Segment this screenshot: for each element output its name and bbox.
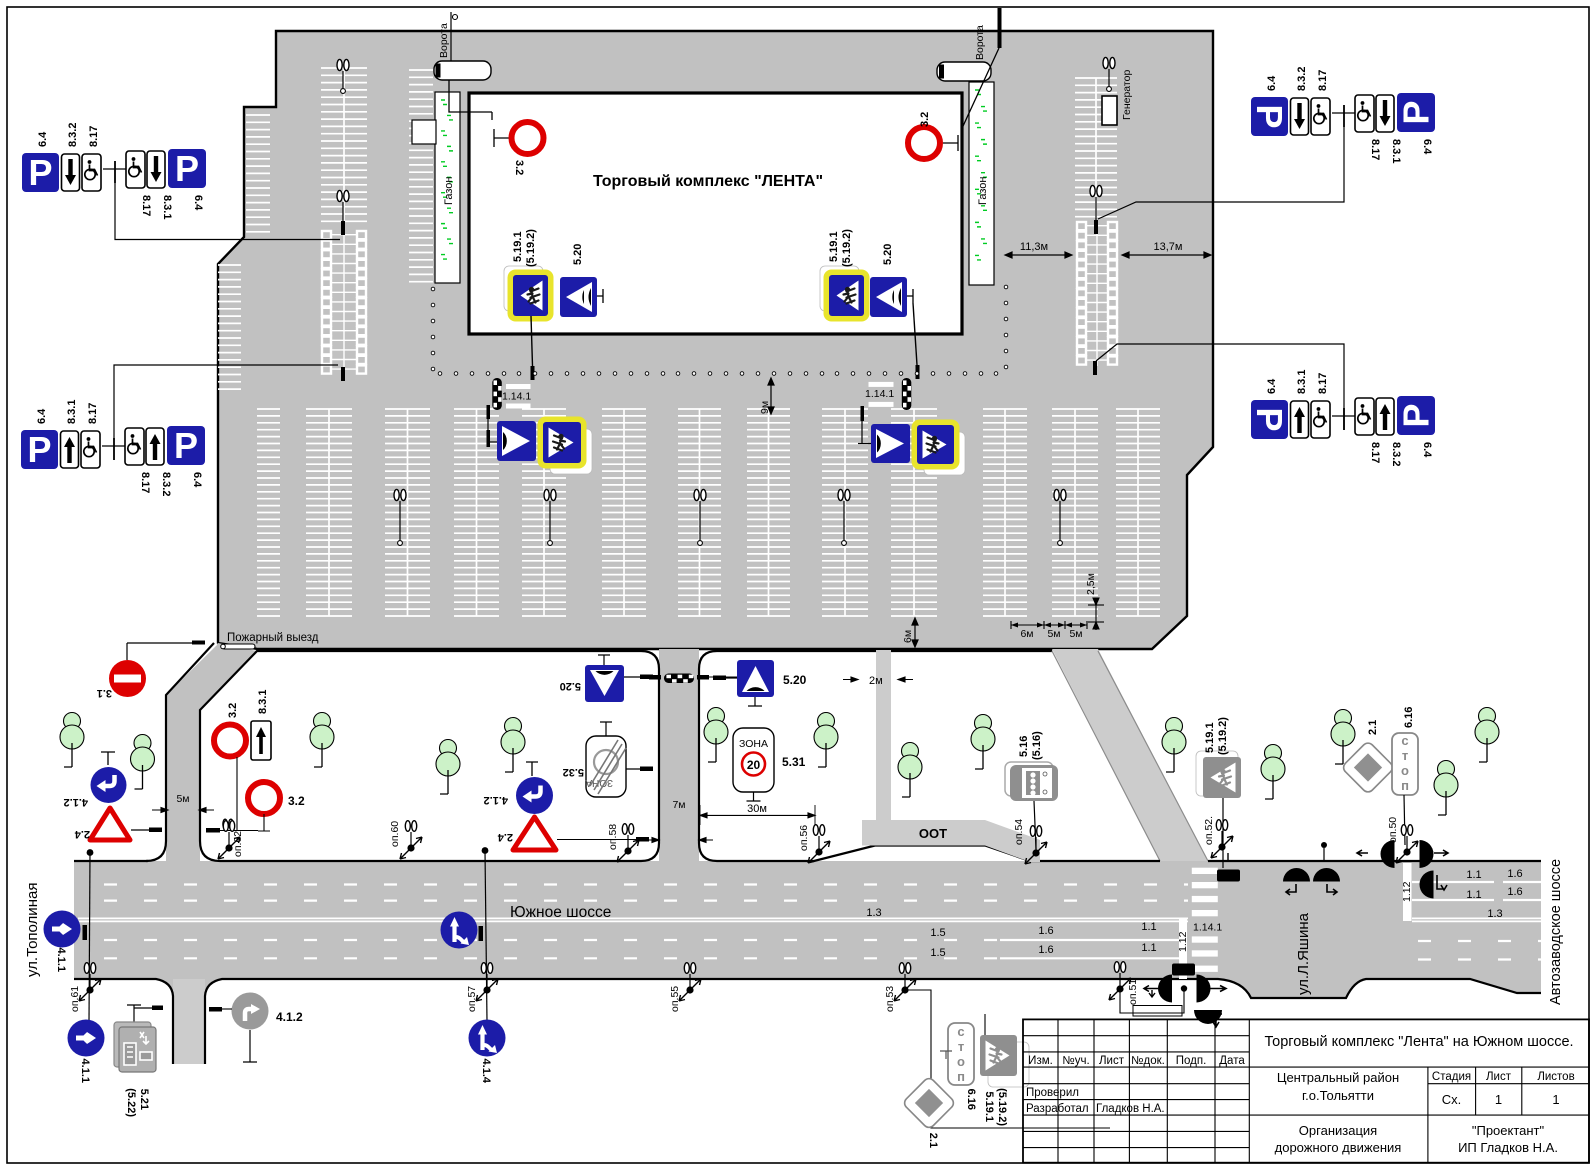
svg-text:1.6: 1.6 (1038, 925, 1053, 937)
svg-text:5.16: 5.16 (1018, 736, 1030, 757)
svg-text:8.17: 8.17 (1369, 139, 1381, 160)
svg-text:3.1: 3.1 (97, 687, 112, 699)
svg-text:(5.19.2): (5.19.2) (1217, 717, 1229, 755)
svg-text:п: п (957, 1069, 965, 1084)
svg-text:8.17: 8.17 (1317, 373, 1329, 394)
svg-text:оп.58: оп.58 (607, 824, 619, 850)
svg-text:ИП Гладков Н.А.: ИП Гладков Н.А. (1458, 1140, 1558, 1155)
svg-text:2.1: 2.1 (927, 1133, 939, 1148)
svg-text:6м: 6м (902, 630, 914, 643)
svg-text:4.1.1: 4.1.1 (55, 948, 67, 972)
svg-text:(5.19.2): (5.19.2) (525, 229, 537, 267)
svg-text:оп.60: оп.60 (389, 821, 401, 847)
svg-text:Центральный район: Центральный район (1277, 1070, 1399, 1085)
svg-text:оп.53: оп.53 (884, 986, 896, 1012)
svg-text:Сх.: Сх. (1442, 1092, 1462, 1107)
svg-text:3.2: 3.2 (919, 112, 931, 127)
svg-text:6.4: 6.4 (37, 131, 49, 147)
svg-text:P: P (1249, 104, 1290, 128)
svg-text:оп.61: оп.61 (69, 986, 81, 1012)
svg-text:8.3.2: 8.3.2 (1296, 67, 1308, 91)
svg-text:п: п (1401, 778, 1409, 793)
svg-text:3.2: 3.2 (227, 703, 239, 718)
svg-text:1.6: 1.6 (1038, 944, 1053, 956)
svg-text:1.5: 1.5 (930, 927, 945, 939)
svg-text:5.19.1: 5.19.1 (828, 231, 840, 262)
svg-text:Ворота: Ворота (974, 25, 986, 60)
svg-text:5м: 5м (1069, 628, 1082, 640)
svg-text:Дата: Дата (1219, 1055, 1245, 1067)
svg-text:6.4: 6.4 (1266, 75, 1278, 91)
svg-text:8.17: 8.17 (1369, 442, 1381, 463)
svg-text:4.1.1: 4.1.1 (79, 1059, 91, 1083)
svg-text:Автозаводское шоссе: Автозаводское шоссе (1548, 859, 1564, 1005)
svg-text:8.17: 8.17 (87, 403, 99, 424)
svg-text:Лист: Лист (1099, 1055, 1125, 1067)
svg-text:т: т (958, 1039, 964, 1054)
svg-text:P: P (174, 425, 198, 466)
svg-text:8.3.2: 8.3.2 (160, 472, 172, 496)
svg-text:1: 1 (1552, 1092, 1559, 1107)
svg-text:2м: 2м (869, 675, 883, 687)
svg-text:Листов: Листов (1537, 1071, 1574, 1083)
svg-text:6.4: 6.4 (1421, 442, 1433, 458)
svg-text:1.14.1: 1.14.1 (865, 388, 894, 400)
svg-text:Ворота: Ворота (438, 23, 450, 58)
svg-text:P: P (1396, 100, 1437, 124)
svg-text:P: P (28, 152, 52, 193)
svg-text:4.1.4: 4.1.4 (480, 1059, 492, 1084)
svg-text:1.6: 1.6 (1507, 868, 1522, 880)
svg-text:(5.19.2): (5.19.2) (996, 1088, 1008, 1126)
svg-text:2.1: 2.1 (1367, 720, 1379, 735)
svg-text:8.3.1: 8.3.1 (1296, 370, 1308, 394)
svg-text:5.20: 5.20 (572, 244, 584, 265)
svg-text:оп.62: оп.62 (232, 831, 244, 857)
svg-text:5.19.1: 5.19.1 (1204, 722, 1216, 753)
svg-text:6.4: 6.4 (192, 195, 204, 211)
svg-text:3.2: 3.2 (513, 160, 525, 175)
svg-text:о: о (1401, 763, 1409, 778)
svg-text:8.3.1: 8.3.1 (66, 400, 78, 424)
svg-text:1.14.1: 1.14.1 (502, 391, 531, 403)
svg-text:Разработал: Разработал (1026, 1103, 1089, 1115)
svg-text:дорожного движения: дорожного движения (1275, 1140, 1402, 1155)
svg-text:оп.50: оп.50 (1387, 817, 1399, 843)
svg-text:1.6: 1.6 (1507, 886, 1522, 898)
svg-text:Газон: Газон (977, 177, 989, 205)
svg-text:г.о.Тольятти: г.о.Тольятти (1302, 1088, 1374, 1103)
svg-text:оп.56: оп.56 (798, 825, 810, 851)
svg-text:Торговый комплекс "ЛЕНТА": Торговый комплекс "ЛЕНТА" (593, 173, 823, 190)
svg-text:Изм.: Изм. (1028, 1055, 1053, 1067)
svg-text:30м: 30м (747, 803, 767, 815)
svg-text:ул.Л.Яшина: ул.Л.Яшина (1295, 912, 1312, 995)
svg-text:20: 20 (747, 758, 761, 772)
svg-text:8.17: 8.17 (139, 472, 151, 493)
svg-text:1.3: 1.3 (866, 907, 881, 919)
svg-text:6.4: 6.4 (1266, 378, 1278, 394)
svg-text:1.1: 1.1 (1466, 889, 1481, 901)
svg-text:6м: 6м (1020, 628, 1033, 640)
svg-text:13,7м: 13,7м (1154, 241, 1183, 253)
svg-text:11,3м: 11,3м (1020, 241, 1048, 253)
svg-text:Проверил: Проверил (1026, 1087, 1079, 1099)
svg-text:Организация: Организация (1299, 1123, 1377, 1138)
svg-text:4.1.2: 4.1.2 (276, 1010, 303, 1024)
svg-text:(5.19.2): (5.19.2) (841, 229, 853, 267)
svg-text:(5.22): (5.22) (125, 1088, 137, 1117)
svg-text:4.1.2: 4.1.2 (484, 794, 508, 806)
svg-text:с: с (1401, 733, 1408, 748)
svg-text:ООТ: ООТ (919, 826, 947, 841)
svg-text:№уч.: №уч. (1062, 1055, 1089, 1067)
svg-text:1.12: 1.12 (1401, 881, 1413, 902)
svg-text:Генератор: Генератор (1121, 70, 1133, 120)
svg-text:оп.52.: оп.52. (1203, 816, 1215, 845)
svg-text:5.19.1: 5.19.1 (983, 1091, 995, 1122)
svg-text:оп.55: оп.55 (669, 986, 681, 1012)
svg-text:P: P (175, 148, 199, 189)
svg-text:Южное шоссе: Южное шоссе (510, 904, 611, 921)
svg-text:1.5: 1.5 (930, 947, 945, 959)
svg-text:8.3.1: 8.3.1 (161, 195, 173, 219)
svg-text:3.2: 3.2 (288, 794, 305, 808)
svg-text:5м: 5м (176, 793, 189, 805)
svg-text:т: т (1402, 748, 1408, 763)
svg-text:(5.16): (5.16) (1031, 731, 1043, 760)
svg-text:оп.51: оп.51 (1127, 979, 1139, 1005)
svg-text:1.1: 1.1 (1466, 869, 1481, 881)
svg-text:6.16: 6.16 (965, 1089, 977, 1110)
svg-text:5м: 5м (1047, 628, 1060, 640)
svg-text:оп.54: оп.54 (1013, 819, 1025, 845)
svg-text:8.3.2: 8.3.2 (1390, 442, 1402, 466)
svg-text:7м: 7м (672, 799, 685, 811)
svg-text:Газон: Газон (443, 177, 455, 205)
svg-text:8.3.2: 8.3.2 (67, 123, 79, 147)
svg-text:ул.Тополиная: ул.Тополиная (24, 883, 41, 977)
svg-text:1.14.1: 1.14.1 (1193, 922, 1222, 934)
svg-text:5.20: 5.20 (560, 680, 581, 692)
svg-text:8.17: 8.17 (140, 195, 152, 216)
svg-text:P: P (1249, 407, 1290, 431)
svg-text:2.4: 2.4 (497, 831, 513, 843)
svg-text:1: 1 (1495, 1092, 1502, 1107)
svg-text:о: о (957, 1054, 965, 1069)
svg-text:2,5м: 2,5м (1085, 573, 1097, 595)
svg-text:9м: 9м (759, 401, 771, 414)
svg-text:Торговый комплекс "Лента" на Ю: Торговый комплекс "Лента" на Южном шоссе… (1264, 1034, 1573, 1050)
svg-text:8.17: 8.17 (88, 126, 100, 147)
svg-text:1.1: 1.1 (1141, 921, 1156, 933)
svg-text:8.17: 8.17 (1317, 70, 1329, 91)
svg-text:оп.57: оп.57 (466, 986, 478, 1012)
svg-text:Гладков Н.А.: Гладков Н.А. (1096, 1103, 1165, 1115)
svg-text:Пожарный выезд: Пожарный выезд (227, 632, 319, 644)
svg-text:4.1.2: 4.1.2 (64, 796, 88, 808)
svg-text:с: с (957, 1024, 964, 1039)
svg-text:2.4: 2.4 (74, 828, 90, 840)
svg-text:8.3.1: 8.3.1 (257, 690, 269, 714)
svg-text:5.31: 5.31 (782, 755, 806, 769)
svg-text:1.1: 1.1 (1141, 942, 1156, 954)
svg-text:P: P (1396, 403, 1437, 427)
svg-text:5.21: 5.21 (138, 1089, 150, 1110)
svg-text:8.3.1: 8.3.1 (1390, 139, 1402, 163)
svg-text:P: P (27, 429, 51, 470)
svg-text:5.20: 5.20 (783, 673, 807, 687)
svg-text:6.4: 6.4 (36, 408, 48, 424)
svg-text:6.4: 6.4 (1421, 139, 1433, 155)
svg-text:Подп.: Подп. (1176, 1055, 1207, 1067)
svg-text:№док.: №док. (1131, 1055, 1165, 1067)
svg-text:ЗОНА: ЗОНА (739, 738, 768, 750)
svg-text:Лист: Лист (1486, 1071, 1512, 1083)
svg-text:6.4: 6.4 (191, 472, 203, 488)
svg-text:5.20: 5.20 (882, 244, 894, 265)
svg-text:5.19.1: 5.19.1 (512, 231, 524, 262)
svg-text:1.12: 1.12 (1177, 931, 1189, 952)
svg-text:1.3: 1.3 (1487, 908, 1502, 920)
svg-text:6.16: 6.16 (1403, 707, 1415, 728)
svg-text:"Проектант": "Проектант" (1472, 1123, 1545, 1138)
svg-text:Стадия: Стадия (1432, 1071, 1471, 1083)
svg-text:5.32: 5.32 (563, 766, 584, 778)
